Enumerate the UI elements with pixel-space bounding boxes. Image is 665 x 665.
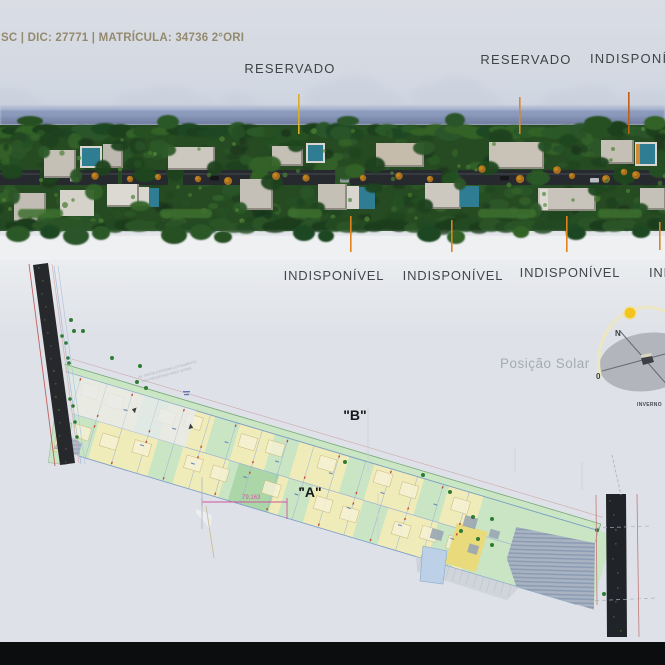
svg-text:INDISPONÍVEL: INDISPONÍVEL bbox=[520, 265, 621, 280]
svg-text:INDISPONÍVEL: INDISPONÍVEL bbox=[649, 265, 665, 280]
svg-text:INVERNO: INVERNO bbox=[637, 402, 662, 408]
svg-text:INDISPONÍVEL: INDISPONÍVEL bbox=[403, 268, 504, 283]
svg-text:RESERVADO: RESERVADO bbox=[480, 52, 571, 67]
svg-text:N: N bbox=[615, 329, 621, 338]
svg-text:"A": "A" bbox=[298, 484, 321, 500]
svg-text:79,163: 79,163 bbox=[242, 495, 261, 501]
svg-text:SC | DIC: 27771 | MATRÍCUL: SC | DIC: 27771 | MATRÍCULA: 34736 2°ORI bbox=[1, 31, 244, 44]
svg-text:INDISPONÍVEL: INDISPONÍVEL bbox=[284, 268, 385, 283]
svg-text:Posição Solar: Posição Solar bbox=[500, 356, 590, 371]
svg-text:0: 0 bbox=[596, 372, 601, 381]
svg-text:"B": "B" bbox=[343, 407, 366, 423]
svg-text:RESERVADO: RESERVADO bbox=[244, 61, 335, 76]
svg-text:INDISPONÍVEL: INDISPONÍVEL bbox=[590, 51, 665, 66]
